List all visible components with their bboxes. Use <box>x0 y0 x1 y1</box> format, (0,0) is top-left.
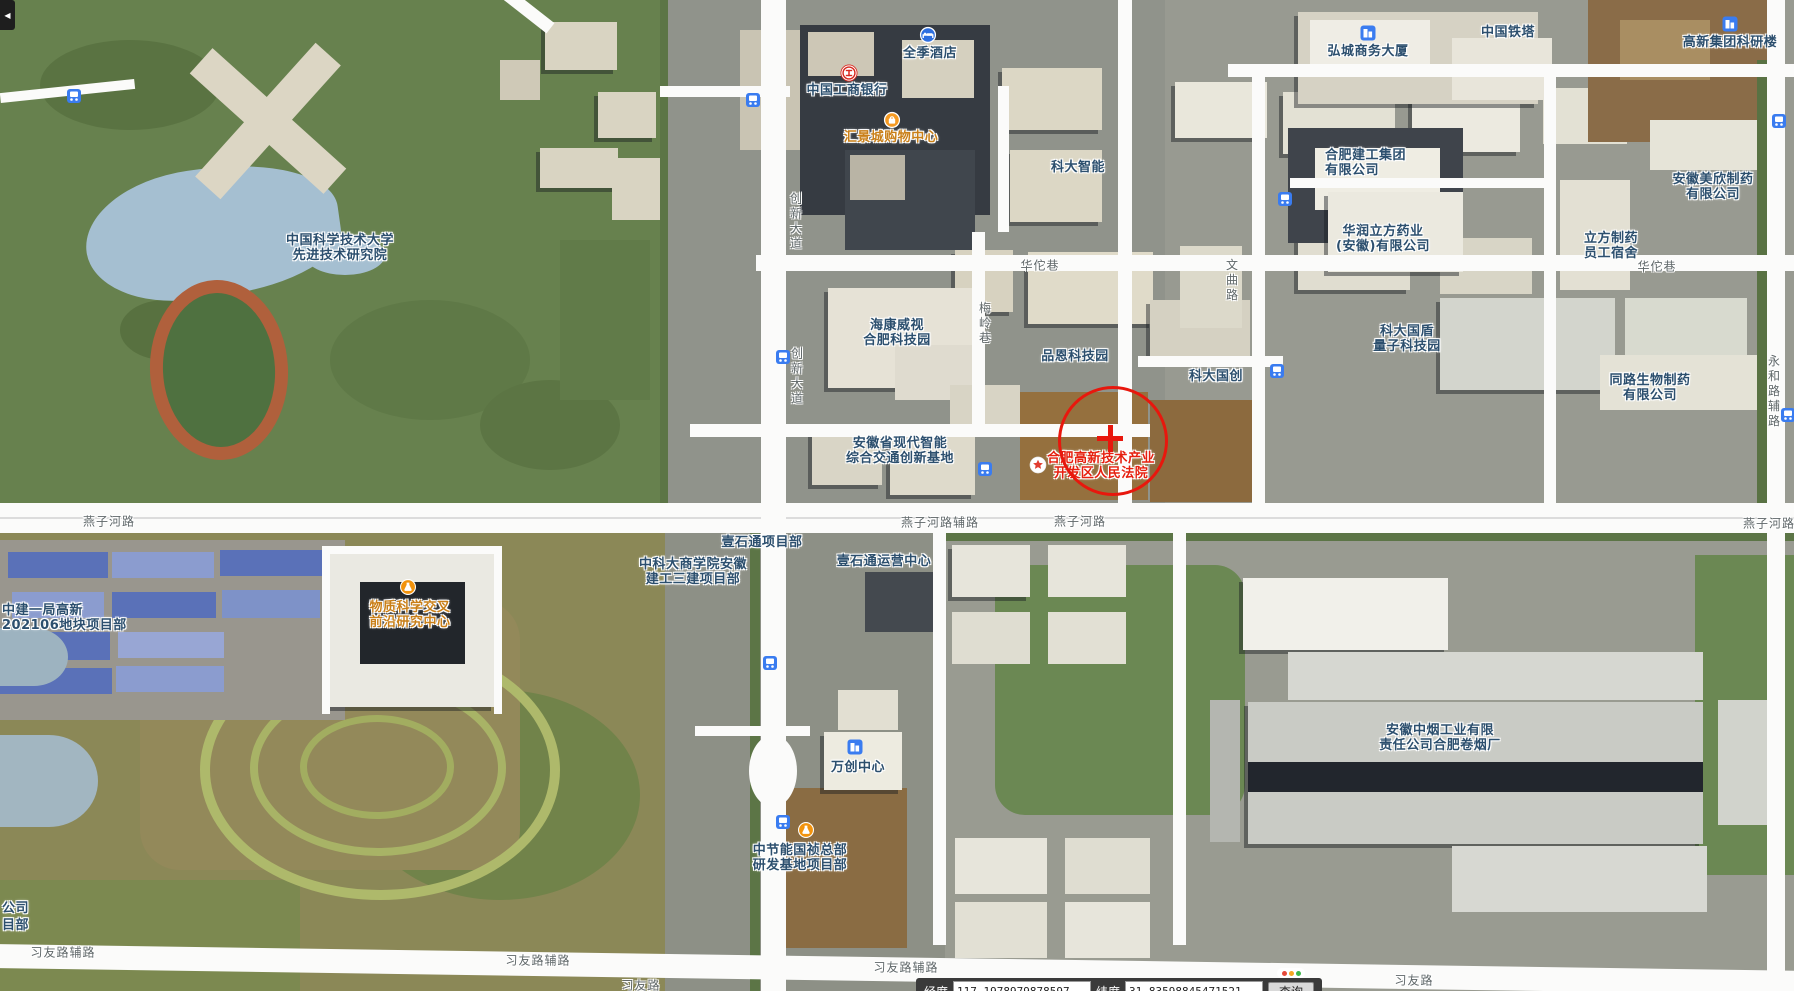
road-wenqu <box>1252 64 1265 505</box>
poi-label-line: 万创中心 <box>831 760 885 775</box>
poi-label-line: 综合交通创新基地 <box>846 451 954 466</box>
poi-label-line: 华润立方药业 <box>1336 224 1430 239</box>
poi-label-wanchuang-center[interactable]: 万创中心 <box>831 760 885 775</box>
road-label-yanzihe-road-mid: 燕子河路 <box>1054 513 1106 530</box>
poi-label-pinen-tech-park[interactable]: 品恩科技园 <box>1041 349 1109 364</box>
road-label-xiyou-road-frontage-mid: 习友路辅路 <box>505 952 570 969</box>
poi-label-line: 中建一局高新 <box>2 603 127 618</box>
poi-label-matter-science-research-center[interactable]: 物质科学交叉前沿研究中心 <box>369 600 450 630</box>
building-icon[interactable] <box>1723 17 1738 32</box>
road-yonghe-frontage <box>1767 0 1785 991</box>
poi-label-line: 中科大商学院安徽 <box>639 557 747 572</box>
latitude-input[interactable] <box>1125 981 1263 991</box>
latitude-label: 纬度 <box>1096 983 1120 991</box>
poi-label-line: 弘城商务大厦 <box>1327 44 1408 59</box>
poi-label-line: 安徽美欣制药 <box>1672 172 1753 187</box>
collapse-panel-button[interactable]: ◀ <box>0 0 15 30</box>
poi-label-anhui-meixin-pharma[interactable]: 安徽美欣制药有限公司 <box>1672 172 1753 202</box>
poi-label-line: 中国铁塔 <box>1481 25 1535 40</box>
poi-label-line: 物质科学交叉 <box>369 600 450 615</box>
road-label-xiyou-road-s: 习友路 <box>621 977 660 991</box>
query-button[interactable]: 查询 <box>1268 982 1314 991</box>
bus-stop-icon-3[interactable] <box>1278 192 1292 206</box>
poi-label-ustc-advanced-institute[interactable]: 中国科学技术大学先进技术研究院 <box>286 233 394 263</box>
poi-label-anhui-tobacco-hefei-factory[interactable]: 安徽中烟工业有限责任公司合肥卷烟厂 <box>1379 723 1501 753</box>
poi-label-line: 科大智能 <box>1051 160 1105 175</box>
bus-stop-icon-7[interactable] <box>763 656 777 670</box>
flask-icon[interactable] <box>400 579 416 595</box>
road-label-huatuo-lane-e: 华佗巷 <box>1637 258 1676 275</box>
poi-label-line: 建工三建项目部 <box>639 572 747 587</box>
road-label-wenqu-road: 文曲路 <box>1224 259 1241 304</box>
bus-stop-icon-5[interactable] <box>1270 364 1284 378</box>
poi-label-clipped-label-company[interactable]: 公司 <box>2 901 29 916</box>
hotel-icon[interactable] <box>920 27 937 44</box>
poi-label-yishitong-project-dept[interactable]: 壹石通项目部 <box>721 535 802 550</box>
highlight-circle <box>1058 386 1168 496</box>
road-label-xiyou-road-frontage-e: 习友路辅路 <box>873 959 938 976</box>
bus-stop-icon-6[interactable] <box>978 462 992 476</box>
poi-label-hefei-construction-group[interactable]: 合肥建工集团有限公司 <box>1325 148 1406 178</box>
poi-label-line: 有限公司 <box>1325 163 1406 178</box>
bus-stop-icon-2[interactable] <box>746 93 760 107</box>
star-icon[interactable] <box>1030 457 1047 474</box>
poi-label-anhui-smart-transport-base[interactable]: 安徽省现代智能综合交通创新基地 <box>846 436 954 466</box>
bank-icon[interactable] <box>841 65 858 82</box>
poi-label-line: 高新集团科研楼 <box>1683 35 1778 50</box>
poi-label-hikvision-hefei-park[interactable]: 海康威视合肥科技园 <box>863 318 931 348</box>
poi-label-line: 海康威视 <box>863 318 931 333</box>
poi-label-line: 中国科学技术大学 <box>286 233 394 248</box>
road-label-yanzihe-road-frontage: 燕子河路辅路 <box>901 514 979 531</box>
status-dot <box>1289 971 1294 976</box>
road-label-xiyou-road-e: 习友路 <box>1394 972 1433 989</box>
road-label-meiling-lane: 梅岭巷 <box>977 302 994 347</box>
poi-label-line: 有限公司 <box>1672 187 1753 202</box>
poi-label-china-tower[interactable]: 中国铁塔 <box>1481 25 1535 40</box>
building-icon[interactable] <box>848 740 863 755</box>
road-label-chuangxin-avenue-mid: 创新大道 <box>789 347 806 407</box>
bus-stop-icon-1[interactable] <box>67 89 81 103</box>
poi-label-line: 壹石通运营中心 <box>837 554 932 569</box>
poi-label-line: 公司 <box>2 901 29 916</box>
poi-label-quanji-hotel[interactable]: 全季酒店 <box>903 46 957 61</box>
poi-label-line: 安徽中烟工业有限 <box>1379 723 1501 738</box>
shopping-icon[interactable] <box>884 112 901 129</box>
bus-stop-icon-10[interactable] <box>1781 408 1794 422</box>
status-dots-indicator <box>1277 968 1305 978</box>
poi-label-line: 科大国盾 <box>1373 324 1441 339</box>
road-label-yanzihe-road-e: 燕子河路 <box>1743 515 1794 532</box>
poi-label-lifang-pharma-dorm[interactable]: 立方制药员工宿舍 <box>1584 231 1638 261</box>
poi-label-line: 合肥科技园 <box>863 333 931 348</box>
poi-label-line: 同路生物制药 <box>1609 373 1690 388</box>
poi-label-ustc-business-school-project[interactable]: 中科大商学院安徽建工三建项目部 <box>639 557 747 587</box>
road-label-huatuo-lane-w: 华佗巷 <box>1020 257 1059 274</box>
poi-label-line: 科大国创 <box>1189 369 1243 384</box>
longitude-input[interactable] <box>953 981 1091 991</box>
poi-label-line: 员工宿舍 <box>1584 246 1638 261</box>
poi-label-hongcheng-business-tower[interactable]: 弘城商务大厦 <box>1327 44 1408 59</box>
poi-label-clipped-label-project[interactable]: 目部 <box>2 918 29 933</box>
poi-label-line: 有限公司 <box>1609 388 1690 403</box>
longitude-label: 经度 <box>924 983 948 991</box>
bus-stop-icon-8[interactable] <box>776 815 790 829</box>
coordinate-bar: 经度 纬度 查询 <box>916 978 1322 991</box>
poi-label-line: 品恩科技园 <box>1041 349 1109 364</box>
road-label-xiyou-road-frontage-w: 习友路辅路 <box>30 944 95 961</box>
collapse-arrow-icon: ◀ <box>4 11 10 20</box>
poi-label-line: 全季酒店 <box>903 46 957 61</box>
poi-label-icbc-bank[interactable]: 中国工商银行 <box>806 83 887 98</box>
poi-label-line: 目部 <box>2 918 29 933</box>
poi-label-line: 壹石通项目部 <box>721 535 802 550</box>
bus-stop-icon-4[interactable] <box>776 350 790 364</box>
poi-label-zhongjieneng-guozhen-hq[interactable]: 中节能国祯总部研发基地项目部 <box>753 843 848 873</box>
poi-label-line: 汇景城购物中心 <box>844 130 939 145</box>
poi-label-line: 量子科技园 <box>1373 339 1441 354</box>
poi-label-line: 责任公司合肥卷烟厂 <box>1379 738 1501 753</box>
poi-label-yishitong-operation-center[interactable]: 壹石通运营中心 <box>837 554 932 569</box>
poi-label-huijingcheng-mall[interactable]: 汇景城购物中心 <box>844 130 939 145</box>
road-label-chuangxin-avenue-n: 创新大道 <box>788 192 805 252</box>
building-icon[interactable] <box>1361 26 1376 41</box>
poi-label-line: 先进技术研究院 <box>286 248 394 263</box>
poi-label-line: 研发基地项目部 <box>753 858 848 873</box>
poi-label-line: 安徽省现代智能 <box>846 436 954 451</box>
road-label-yonghe-road-frontage: 永和路辅路 <box>1766 355 1783 430</box>
flask-icon[interactable] <box>798 822 814 838</box>
poi-label-gaoxin-group-research-bldg[interactable]: 高新集团科研楼 <box>1683 35 1778 50</box>
poi-label-keda-guochuang[interactable]: 科大国创 <box>1189 369 1243 384</box>
poi-label-tonglu-bio-pharma[interactable]: 同路生物制药有限公司 <box>1609 373 1690 403</box>
status-dot <box>1296 971 1301 976</box>
poi-label-zhongjian-yiju-project[interactable]: 中建一局高新202106地块项目部 <box>2 603 127 633</box>
poi-label-line: 中国工商银行 <box>806 83 887 98</box>
poi-label-line: 202106地块项目部 <box>2 618 127 633</box>
poi-label-line: 合肥建工集团 <box>1325 148 1406 163</box>
poi-label-line: (安徽)有限公司 <box>1336 239 1430 254</box>
poi-label-keda-zhineng[interactable]: 科大智能 <box>1051 160 1105 175</box>
poi-label-line: 前沿研究中心 <box>369 615 450 630</box>
bus-stop-icon-9[interactable] <box>1772 114 1786 128</box>
poi-label-huarun-lifang-pharma[interactable]: 华润立方药业(安徽)有限公司 <box>1336 224 1430 254</box>
poi-label-keda-guodun-quantum-park[interactable]: 科大国盾量子科技园 <box>1373 324 1441 354</box>
status-dot <box>1282 971 1287 976</box>
satellite-map-viewport[interactable]: 中国科学技术大学先进技术研究院全季酒店中国工商银行汇景城购物中心科大智能海康威视… <box>0 0 1794 991</box>
tobacco-factory-building <box>1243 578 1448 650</box>
poi-label-line: 中节能国祯总部 <box>753 843 848 858</box>
poi-label-line: 立方制药 <box>1584 231 1638 246</box>
road-label-yanzihe-road-w: 燕子河路 <box>83 513 135 530</box>
